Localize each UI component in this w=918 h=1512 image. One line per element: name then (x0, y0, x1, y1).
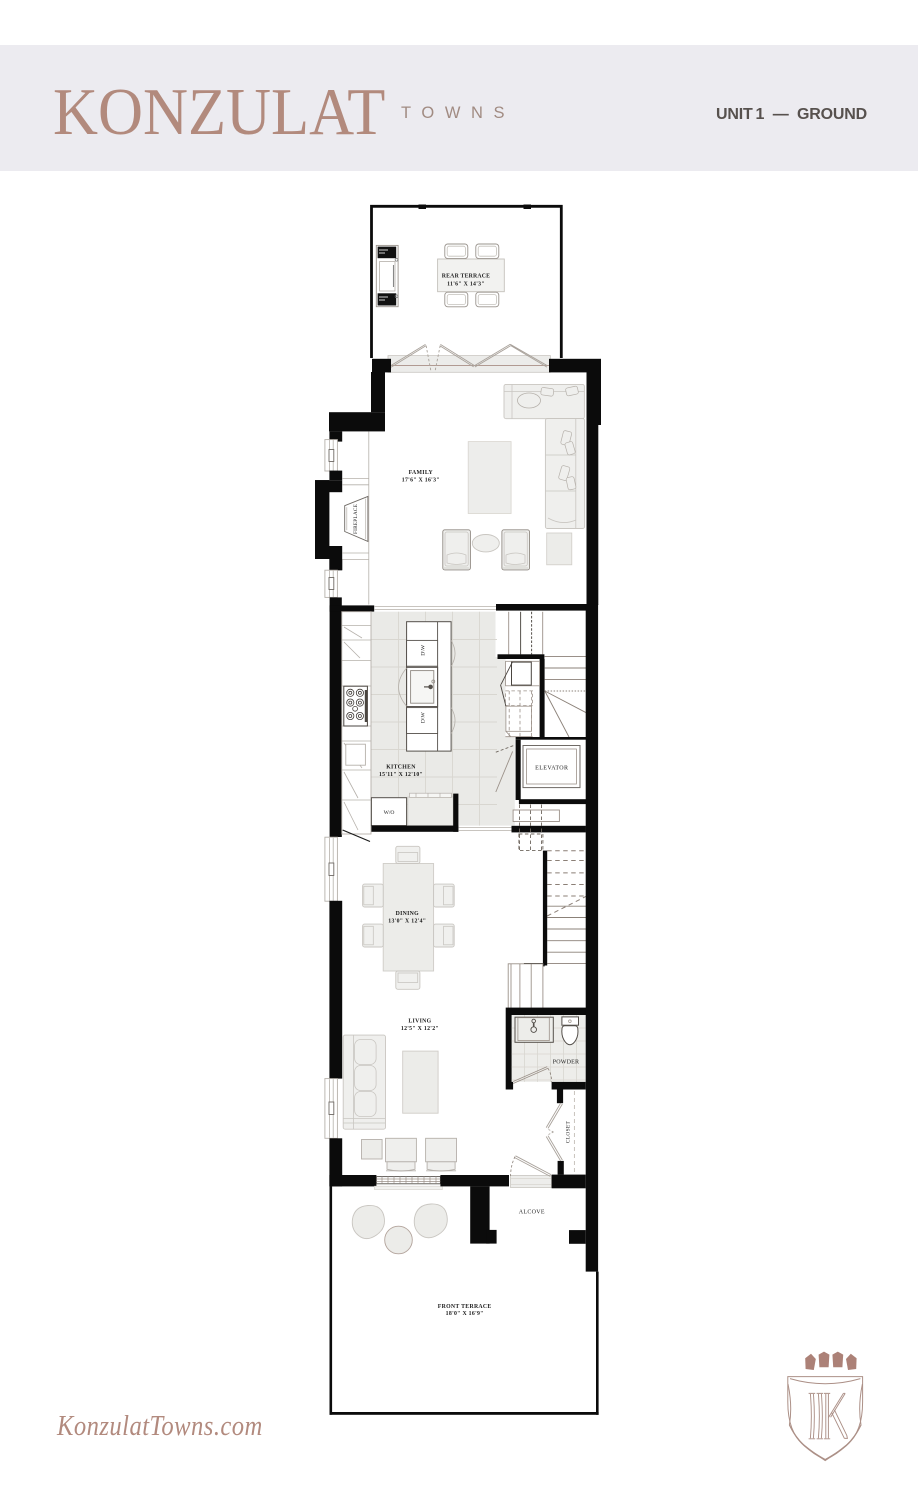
svg-text:CLOSET: CLOSET (566, 1121, 572, 1144)
svg-text:FRONT TERRACE: FRONT TERRACE (438, 1304, 492, 1310)
svg-text:FIREPLACE: FIREPLACE (353, 504, 359, 534)
svg-text:11'6" X 14'3": 11'6" X 14'3" (447, 282, 485, 288)
svg-text:FAMILY: FAMILY (409, 470, 434, 476)
svg-text:REAR TERRACE: REAR TERRACE (442, 274, 491, 280)
svg-text:W/O: W/O (384, 810, 395, 816)
svg-text:LIVING: LIVING (408, 1019, 431, 1025)
svg-text:15'11" X 12'10": 15'11" X 12'10" (379, 772, 423, 778)
svg-text:KITCHEN: KITCHEN (386, 764, 416, 770)
svg-text:13'0" X 12'4": 13'0" X 12'4" (388, 919, 426, 925)
svg-text:DINING: DINING (396, 911, 420, 917)
svg-text:D\W: D\W (421, 644, 427, 656)
svg-text:D\W: D\W (421, 712, 427, 724)
svg-text:12'5" X 12'2": 12'5" X 12'2" (401, 1026, 439, 1032)
svg-text:ELEVATOR: ELEVATOR (535, 766, 568, 772)
svg-text:18'0" X 16'9": 18'0" X 16'9" (446, 1311, 484, 1317)
svg-text:POWDER: POWDER (553, 1060, 580, 1066)
svg-text:ALCOVE: ALCOVE (519, 1210, 545, 1216)
svg-text:17'6" X 16'3": 17'6" X 16'3" (402, 477, 440, 483)
